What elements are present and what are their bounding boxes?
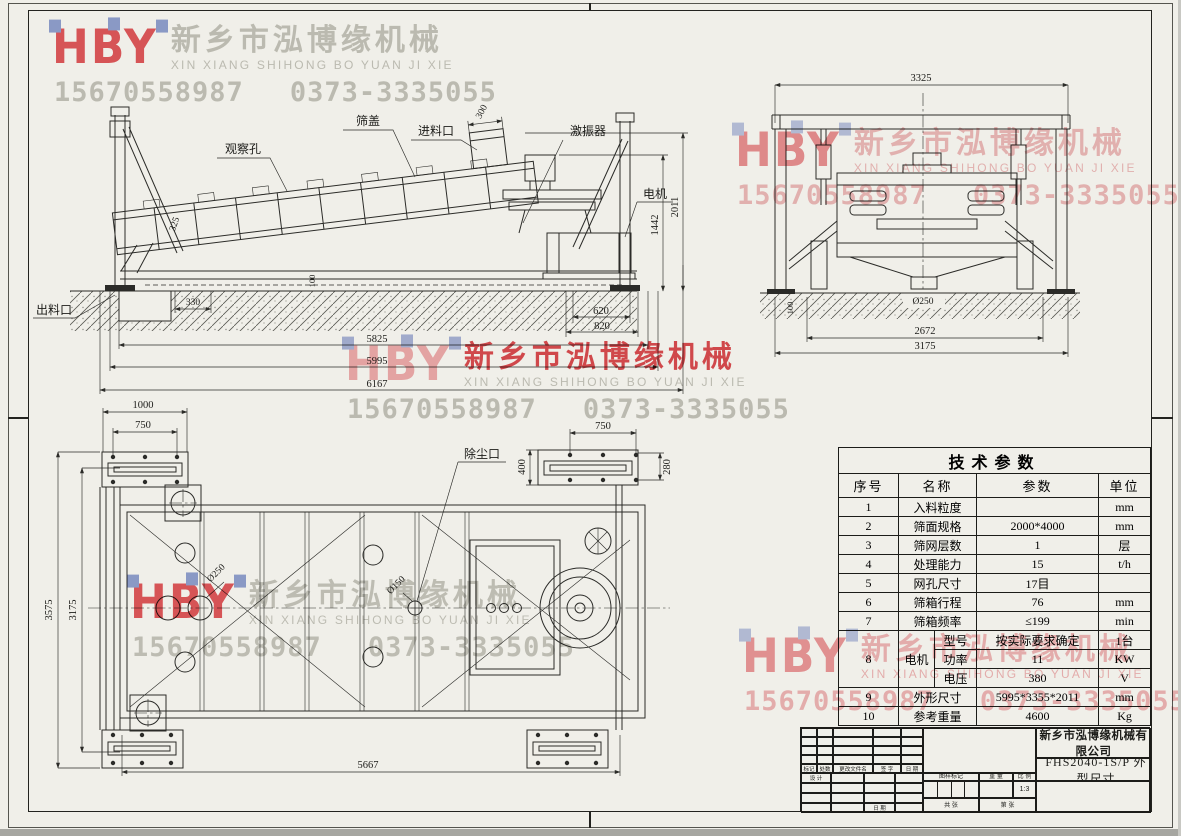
motor (543, 233, 635, 279)
label-motor: 电机 (643, 187, 667, 201)
label-mark: 标记 (801, 764, 817, 773)
outlet (911, 277, 937, 289)
spec-row-4: 4处理能力15t/h (839, 555, 1151, 574)
label-sheets-total: 共 张 (923, 798, 979, 813)
dim-overall-width: 3325 (911, 73, 932, 84)
label-leaders (206, 462, 506, 601)
dim-pit-outer: 820 (594, 321, 610, 332)
dim-discharge-pit: 330 (186, 298, 201, 308)
dim-support-span: 5825 (367, 334, 388, 345)
label-feed-inlet: 进料口 (418, 124, 454, 138)
label-sheet-no: 第 张 (979, 798, 1036, 813)
dim-base-width: 3175 (915, 341, 936, 352)
spec-table: 技术参数 序号 名称 参数 单位 1入料粒度mm 2筛面规格2000*4000m… (838, 447, 1151, 726)
dim-bolt-width: 280 (662, 459, 673, 475)
dim-pit-inner: 620 (593, 306, 609, 317)
label-discharge-outlet: 出料口 (36, 303, 72, 317)
spec-table-header-row: 序号 名称 参数 单位 (839, 474, 1151, 498)
discharge-spout-bottom (130, 695, 166, 731)
spec-row-5: 5网孔尺寸17目 (839, 574, 1151, 593)
support-legs (100, 485, 622, 730)
frame-center-tick-right (1152, 417, 1173, 419)
exciter (503, 155, 601, 233)
label-date2: 日 期 (864, 803, 895, 813)
dim-plate-length: 1000 (133, 400, 154, 411)
spec-row-7: 7筛箱频率≤199min (839, 612, 1151, 631)
right-foot (610, 285, 640, 291)
screen-body: 300 (105, 98, 539, 255)
plan-view-drawing: 1000 750 750 400 280 3575 3175 Ø250 Ø150… (30, 395, 730, 793)
hanger-rods (821, 129, 1021, 205)
engineering-drawing-page: { "watermark": { "logo_text": "HBY", "co… (0, 0, 1181, 836)
label-screen-cover: 筛盖 (356, 113, 380, 128)
spec-row-2: 2筛面规格2000*4000mm (839, 517, 1151, 536)
page-edge-bottom (0, 829, 1181, 836)
dim-body-width-plan: 3175 (68, 600, 79, 621)
signature-grid: 设 计 日 期 (801, 773, 923, 813)
dim-outlet-diameter: Ø250 (912, 297, 933, 307)
label-observation-hole: 观察孔 (225, 142, 261, 156)
label-date: 日 期 (901, 764, 923, 773)
dim-motor-platform-height: 1442 (650, 215, 661, 236)
drawing-mark-boxes (923, 781, 979, 798)
spec-row-6: 6筛箱行程76mm (839, 593, 1151, 612)
spec-row-3: 3筛网层数1层 (839, 536, 1151, 555)
col-header-value: 参数 (977, 474, 1099, 498)
label-count: 处数 (817, 764, 833, 773)
label-signature: 签 字 (873, 764, 901, 773)
side-view-drawing: 300 观察孔 筛盖 进料口 激振器 电机 出料口 325 100 330 62… (25, 95, 725, 405)
mount-plate-top-right (538, 450, 638, 485)
dim-body-side: 325 (168, 216, 182, 233)
dim-overall-width-plan: 3575 (44, 600, 55, 621)
spec-row-8-model: 8 电机 型号按实际要求确定1台 (839, 631, 1151, 650)
blank-cell (923, 728, 1036, 773)
frame-center-tick-bottom (589, 812, 591, 828)
body-outline (120, 505, 645, 718)
left-foot (105, 285, 135, 291)
spec-row-1: 1入料粒度mm (839, 498, 1151, 517)
motor-cell: 电机 (899, 631, 935, 688)
struts (789, 221, 1053, 269)
mount-plate-bottom-left (102, 730, 183, 768)
end-view-drawing: 3325 100 Ø250 2672 3175 (755, 65, 1085, 365)
label-scale: 比 例 (1013, 773, 1036, 781)
spec-table-title-row: 技术参数 (839, 448, 1151, 474)
col-header-unit: 单位 (1099, 474, 1151, 498)
revision-grid (801, 728, 923, 764)
feed-spout-top (165, 485, 201, 521)
dim-overall-height: 2011 (670, 197, 681, 218)
dim-feed-opening: 300 (474, 103, 490, 120)
dim-support-span-end: 2672 (915, 326, 936, 337)
dim-plate-width: 400 (517, 459, 528, 475)
dim-bolt-span-left: 750 (135, 420, 151, 431)
frame-center-tick-left (8, 417, 28, 419)
revision-header-row: 标记 处数 更改文件名 签 字 日 期 (801, 764, 923, 773)
frame-center-tick-top (589, 3, 591, 10)
label-change-doc: 更改文件名 (833, 764, 873, 773)
label-drawing-mark: 图样标记 (923, 773, 979, 781)
exciter-housing-plan (470, 540, 560, 675)
screen-body-end (837, 153, 1017, 289)
dim-anchor-span: 5667 (358, 760, 379, 771)
scale-value-cell: 1:3 (1013, 781, 1036, 798)
col-header-name: 名称 (899, 474, 977, 498)
dust-port-hole (407, 600, 423, 616)
dim-base-length: 5995 (367, 356, 388, 367)
label-exciter: 激振器 (570, 124, 606, 138)
mount-plate-top-left (102, 452, 188, 487)
weight-value-cell (979, 781, 1013, 798)
support-frame (772, 115, 1070, 289)
label-design: 设 计 (801, 773, 831, 783)
label-weight: 重 量 (979, 773, 1013, 781)
blank-cell-bottom-right (1036, 781, 1151, 813)
drawing-number: FHS2040-1S/P 外型尺寸 (1036, 758, 1151, 781)
title-block: 标记 处数 更改文件名 签 字 日 期 设 计 日 期 图样标记 重 量 比 例… (800, 727, 1150, 812)
spec-table-title: 技术参数 (839, 448, 1151, 474)
dim-base-offset: 100 (785, 302, 795, 315)
dim-dust-port-diameter: Ø150 (386, 574, 408, 596)
truss-braces (130, 515, 630, 707)
col-header-no: 序号 (839, 474, 899, 498)
dim-base-channel: 100 (307, 275, 317, 288)
spec-row-10: 10参考重量4600Kg (839, 707, 1151, 726)
dim-overall-length: 6167 (367, 379, 388, 390)
company-name: 新乡市泓博缘机械有限公司 (1036, 728, 1151, 758)
mount-plate-bottom-right (527, 730, 608, 768)
dim-bolt-span-right: 750 (595, 421, 611, 432)
dim-hole-diameter: Ø250 (206, 562, 228, 584)
spec-row-9: 9外形尺寸5995*3355*2011mm (839, 688, 1151, 707)
label-dust-port: 除尘口 (464, 446, 500, 461)
